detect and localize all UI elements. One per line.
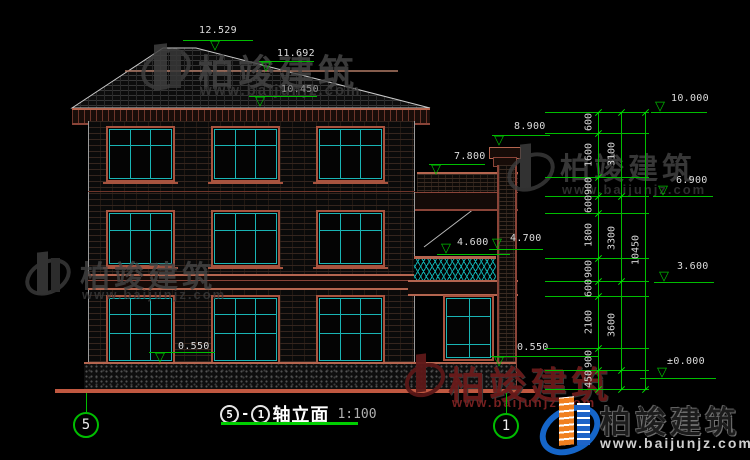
window xyxy=(211,126,280,182)
dim-value: 3100 xyxy=(607,142,618,166)
dim-value: 3600 xyxy=(607,313,618,337)
title-separator: - xyxy=(241,406,249,422)
level-value: 0.550 xyxy=(517,342,549,353)
axis-leader xyxy=(506,393,507,413)
window-glazing xyxy=(319,129,382,179)
title-underline xyxy=(221,422,358,425)
level-value: 12.529 xyxy=(199,25,237,36)
level-triangle-icon: ▽ xyxy=(655,101,665,113)
annex-window xyxy=(443,295,494,361)
cad-elevation-canvas: 柏竣建筑 www.baijunjz.com 柏竣建筑 www.baijunjz.… xyxy=(0,0,750,460)
level-triangle-icon: ▽ xyxy=(657,367,667,379)
level-triangle-icon: ▽ xyxy=(658,185,668,197)
watermark-building-icon xyxy=(170,50,181,88)
level-value: 10.450 xyxy=(281,84,319,95)
wall-right-edge xyxy=(414,121,415,363)
title-axis-right: 1 xyxy=(251,405,270,424)
level-triangle-icon: ▽ xyxy=(255,96,265,108)
window-sill xyxy=(313,182,388,184)
watermark-building-icon xyxy=(37,251,48,294)
window-glazing xyxy=(109,129,172,179)
dim-value: 900 xyxy=(584,260,595,278)
dim-value: 600 xyxy=(584,113,595,131)
level-triangle-icon: ▽ xyxy=(431,164,441,176)
level-triangle-icon: ▽ xyxy=(210,40,220,52)
logo-building-icon xyxy=(577,403,590,445)
dim-value: 900 xyxy=(584,177,595,195)
window-glazing xyxy=(446,298,491,358)
axis-bubble-5: 5 xyxy=(73,412,99,438)
level-value: 7.800 xyxy=(454,151,486,162)
level-triangle-icon: ▽ xyxy=(659,271,669,283)
level-value: ±0.000 xyxy=(667,356,705,367)
level-value: 4.600 xyxy=(457,237,489,248)
window xyxy=(316,210,385,267)
level-value: 4.700 xyxy=(510,233,542,244)
title-scale: 1:100 xyxy=(337,407,376,422)
dim-value: 3300 xyxy=(607,226,618,250)
watermark-building-icon xyxy=(520,143,531,188)
level-value: 11.692 xyxy=(277,48,315,59)
window xyxy=(316,126,385,182)
axis-number: 5 xyxy=(82,417,90,433)
window xyxy=(211,295,280,364)
dim-value: 900 xyxy=(584,350,595,368)
level-triangle-icon: ▽ xyxy=(261,61,271,73)
level-value: 6.900 xyxy=(676,175,708,186)
window-glazing xyxy=(214,213,277,264)
level-triangle-icon: ▽ xyxy=(494,135,504,147)
window-sill xyxy=(103,182,178,184)
level-value: 8.900 xyxy=(514,121,546,132)
dim-value: 2100 xyxy=(584,310,595,334)
watermark-building-icon xyxy=(154,43,167,91)
logo-building-icon xyxy=(559,396,574,446)
dim-chain-line xyxy=(645,112,646,389)
second-floor-line xyxy=(88,191,415,192)
level-triangle-icon: ▽ xyxy=(492,238,502,250)
logo-url: www.baijunjz.com xyxy=(600,435,750,451)
axis-leader xyxy=(86,393,87,412)
level-line xyxy=(491,356,598,357)
watermark-url: www.baijunjz.com xyxy=(82,287,226,302)
level-line xyxy=(640,378,716,379)
level-value: 10.000 xyxy=(671,93,709,104)
title-axis-left: 5 xyxy=(220,405,239,424)
dim-value: 600 xyxy=(584,279,595,297)
window-glazing xyxy=(319,213,382,264)
dim-value: 1800 xyxy=(584,223,595,247)
window-glazing xyxy=(214,129,277,179)
dim-value: 450 xyxy=(584,370,595,388)
window-sill xyxy=(313,267,388,269)
window xyxy=(106,126,175,182)
level-value: 0.550 xyxy=(178,341,210,352)
wall-left-edge xyxy=(88,121,89,363)
axis-number: 1 xyxy=(502,418,510,434)
window-glazing xyxy=(214,298,277,361)
dim-chain-line xyxy=(621,112,622,389)
watermark-building-icon xyxy=(51,258,60,292)
level-triangle-icon: ▽ xyxy=(441,243,451,255)
watermark-building-icon xyxy=(416,353,426,392)
dim-value: 1600 xyxy=(584,143,595,167)
dim-value-overall: 10450 xyxy=(631,235,642,265)
window-sill xyxy=(208,182,283,184)
level-value: 3.600 xyxy=(677,261,709,272)
axis-bubble-1: 1 xyxy=(493,413,519,439)
level-triangle-icon: ▽ xyxy=(494,356,504,368)
level-triangle-icon: ▽ xyxy=(155,352,165,364)
window-sill xyxy=(208,267,283,269)
window-glazing xyxy=(319,298,382,361)
window xyxy=(211,210,280,267)
window xyxy=(316,295,385,364)
dim-value: 600 xyxy=(584,195,595,213)
